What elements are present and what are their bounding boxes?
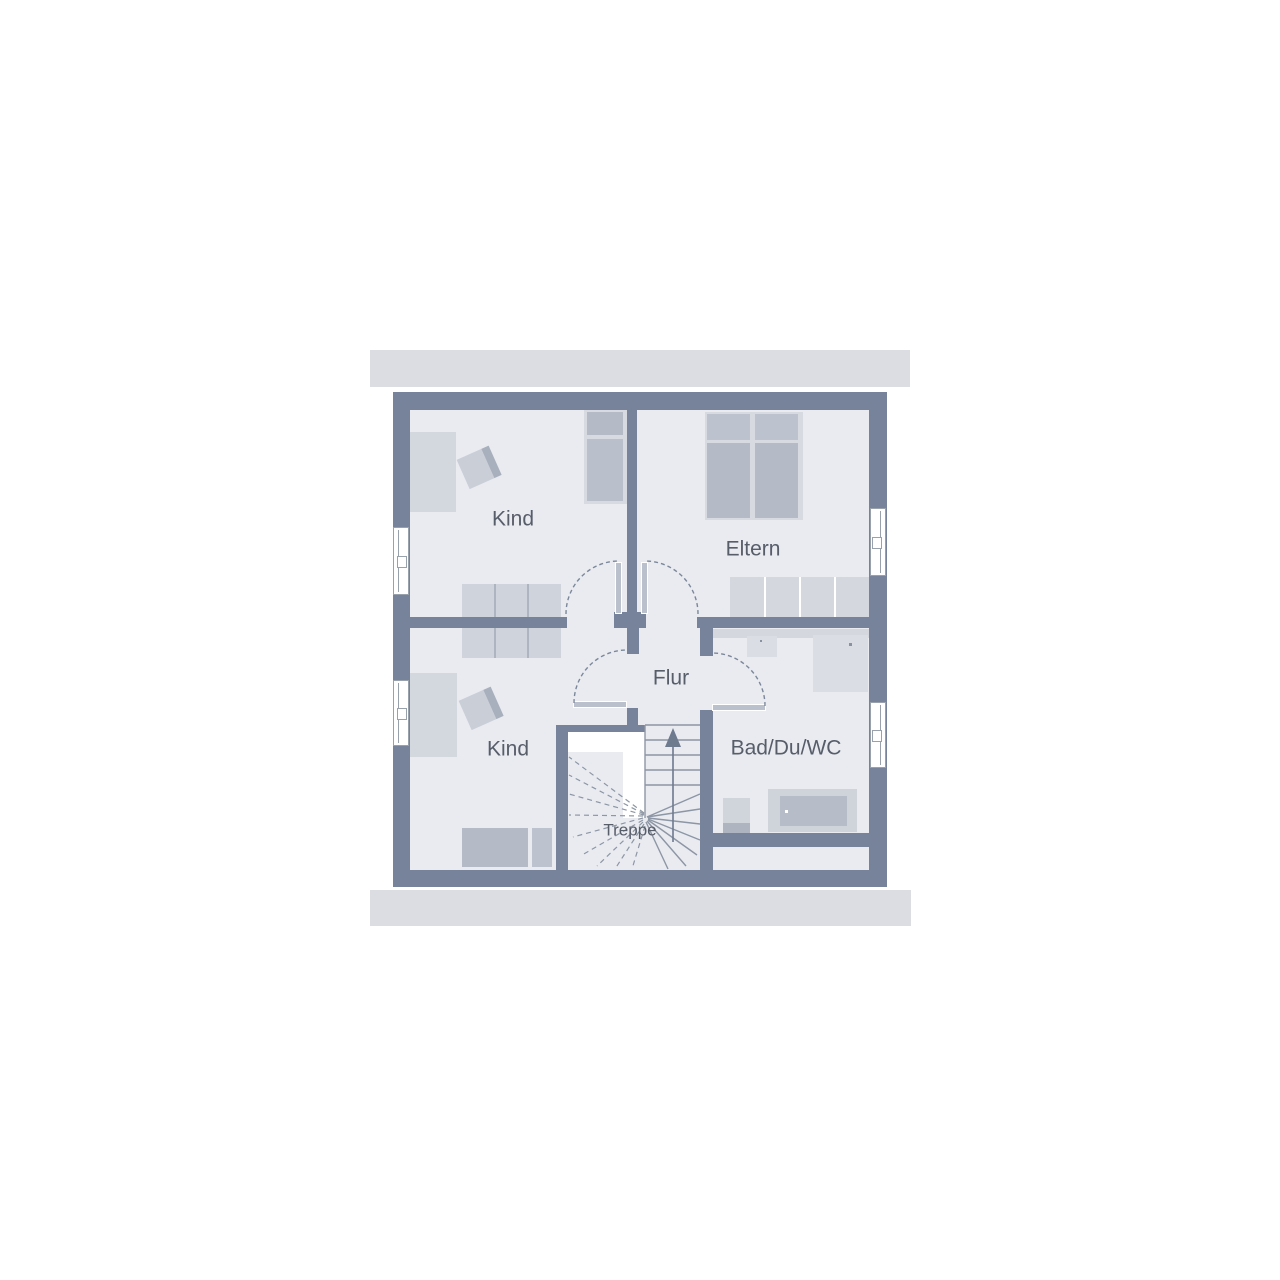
roof-overhang-bottom xyxy=(370,890,911,926)
bathtub-basin xyxy=(780,796,847,826)
wall-flur-bad-upper xyxy=(700,628,713,656)
toilet-cistern xyxy=(723,823,750,833)
wall-stairs-bad xyxy=(700,710,713,870)
desk xyxy=(410,432,456,512)
shower xyxy=(813,635,868,692)
wardrobe-divider xyxy=(799,577,801,617)
bed-mattress xyxy=(587,439,623,501)
wall-kind-kind xyxy=(410,617,567,628)
bed-pillow xyxy=(707,414,750,440)
door-leaf-kind-upper xyxy=(615,562,622,614)
door-leaf-eltern xyxy=(641,562,648,614)
double-bed xyxy=(705,412,803,520)
wardrobe xyxy=(462,584,561,617)
wall-bad-bottom xyxy=(713,833,869,847)
wardrobe xyxy=(730,577,869,617)
stair-left-wall xyxy=(556,725,568,870)
window-right-upper xyxy=(870,508,886,576)
wardrobe-divider xyxy=(494,627,496,658)
wardrobe-divider xyxy=(527,584,529,617)
wardrobe-divider xyxy=(527,627,529,658)
bed-pillow xyxy=(532,828,552,867)
room-label-treppe: Treppe xyxy=(603,822,656,839)
bed-single xyxy=(462,828,528,867)
room-label-kind-lower: Kind xyxy=(487,739,529,760)
bed-pillow xyxy=(587,412,623,435)
stair-landing-column xyxy=(623,731,645,818)
window-right-lower xyxy=(870,702,886,768)
wall-kind-eltern xyxy=(627,410,637,612)
washbasin-drain xyxy=(760,640,762,642)
window-left-upper xyxy=(393,527,409,595)
bed-mattress xyxy=(707,443,750,518)
wardrobe xyxy=(462,627,561,658)
room-label-eltern: Eltern xyxy=(726,539,781,560)
window-left-lower xyxy=(393,680,409,746)
wall-stub-flur-top xyxy=(627,628,639,654)
roof-overhang-top xyxy=(370,350,910,387)
shower-drain xyxy=(849,643,852,646)
wardrobe-divider xyxy=(764,577,766,617)
wardrobe-divider xyxy=(494,584,496,617)
window-latch xyxy=(397,556,407,568)
window-latch xyxy=(872,537,882,549)
window-latch xyxy=(872,730,882,742)
wall-eltern-bad xyxy=(697,617,869,628)
room-label-kind-upper: Kind xyxy=(492,509,534,530)
wall-stub-flur-bottom xyxy=(627,708,638,726)
washbasin xyxy=(747,636,777,657)
bed-pillow xyxy=(755,414,798,440)
desk xyxy=(410,673,457,757)
door-leaf-kind-lower xyxy=(573,701,627,708)
bathtub xyxy=(768,789,857,832)
room-label-bad: Bad/Du/WC xyxy=(731,738,842,759)
bed-mattress xyxy=(755,443,798,518)
window-latch xyxy=(397,708,407,720)
bathtub-drain xyxy=(785,810,788,813)
floor-plan-canvas: Kind Eltern Kind Flur Treppe Bad/Du/WC xyxy=(0,0,1280,1280)
door-leaf-bad xyxy=(712,704,766,711)
stair-top-wall xyxy=(568,725,645,732)
wardrobe-divider xyxy=(834,577,836,617)
bed-single xyxy=(584,410,627,504)
toilet xyxy=(723,798,750,824)
room-label-flur: Flur xyxy=(653,668,689,689)
wall-door-cap xyxy=(614,612,646,628)
